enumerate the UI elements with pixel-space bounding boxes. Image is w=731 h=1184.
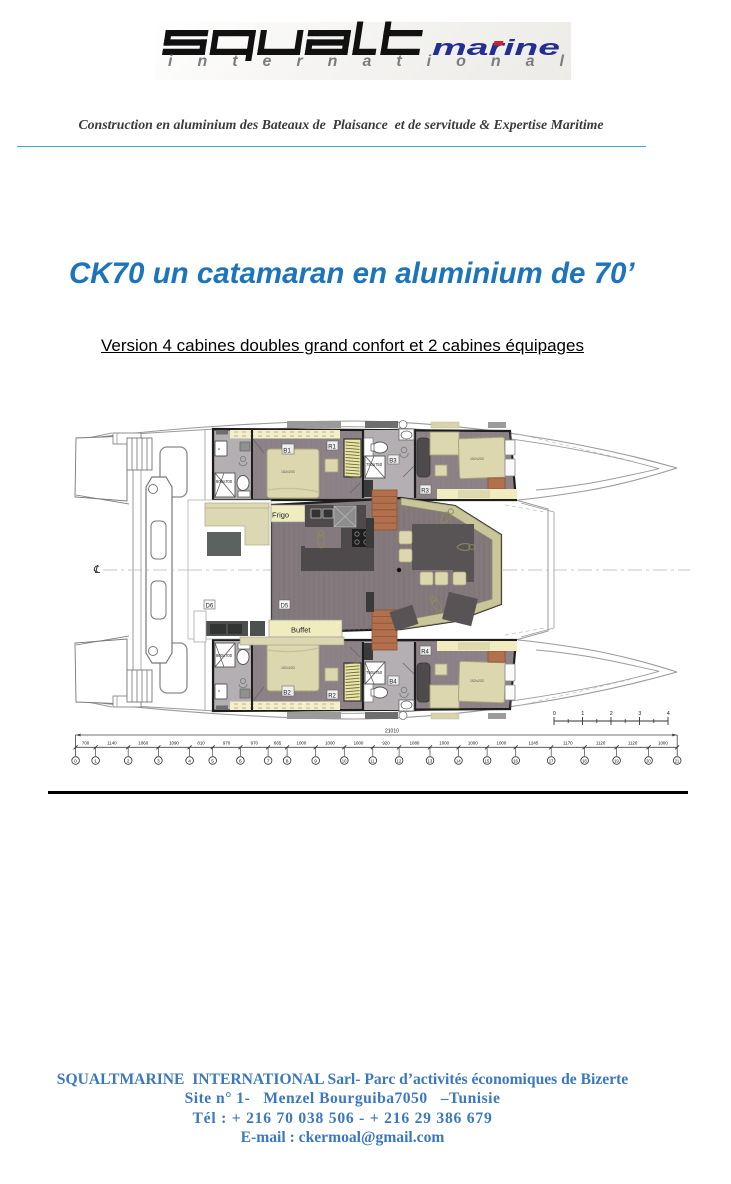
- svg-text:4: 4: [188, 758, 191, 764]
- svg-text:1: 1: [581, 711, 584, 717]
- svg-text:19: 19: [614, 758, 619, 763]
- svg-text:0: 0: [74, 758, 77, 764]
- svg-text:17: 17: [549, 758, 554, 763]
- svg-text:1120: 1120: [596, 741, 606, 746]
- svg-text:152x203: 152x203: [281, 666, 295, 670]
- svg-text:3: 3: [157, 758, 160, 764]
- svg-text:1140: 1140: [107, 741, 117, 746]
- svg-text:1000: 1000: [439, 741, 449, 746]
- svg-text:1000: 1000: [497, 741, 507, 746]
- svg-text:152x203: 152x203: [281, 470, 295, 474]
- svg-text:8: 8: [286, 758, 289, 764]
- svg-text:11: 11: [370, 758, 375, 763]
- svg-text:1000: 1000: [354, 741, 364, 746]
- svg-text:6: 6: [239, 758, 242, 764]
- svg-text:800x700: 800x700: [216, 653, 233, 658]
- svg-text:2: 2: [127, 758, 130, 764]
- svg-text:20: 20: [646, 758, 651, 763]
- svg-text:1120: 1120: [628, 741, 638, 746]
- svg-text:D6: D6: [206, 604, 214, 610]
- svg-text:1090: 1090: [169, 741, 179, 746]
- svg-text:4: 4: [667, 711, 670, 717]
- svg-text:B1: B1: [283, 448, 291, 455]
- svg-text:800x700: 800x700: [216, 479, 233, 484]
- svg-text:1000: 1000: [297, 741, 307, 746]
- svg-text:5: 5: [211, 758, 214, 764]
- svg-text:R1: R1: [328, 445, 336, 451]
- svg-text:R4: R4: [421, 650, 429, 656]
- svg-text:16: 16: [513, 758, 518, 763]
- svg-text:1: 1: [94, 758, 97, 764]
- svg-text:7: 7: [267, 758, 270, 764]
- svg-text:152x203: 152x203: [470, 679, 484, 683]
- svg-text:R3: R3: [421, 489, 429, 495]
- svg-text:18: 18: [582, 758, 587, 763]
- svg-text:810: 810: [197, 741, 205, 746]
- svg-text:℄: ℄: [93, 564, 101, 576]
- svg-text:D5: D5: [281, 604, 289, 610]
- svg-text:665: 665: [274, 741, 282, 746]
- svg-text:Buffet: Buffet: [291, 626, 311, 635]
- svg-text:2: 2: [610, 711, 613, 717]
- svg-text:152x203: 152x203: [470, 457, 484, 461]
- svg-text:21: 21: [675, 758, 680, 763]
- svg-text:15: 15: [485, 758, 490, 763]
- svg-text:1245: 1245: [529, 741, 539, 746]
- svg-text:1080: 1080: [410, 741, 420, 746]
- svg-text:750x750: 750x750: [366, 670, 383, 675]
- svg-text:0: 0: [553, 711, 556, 717]
- svg-text:10: 10: [342, 758, 347, 763]
- svg-text:700: 700: [82, 741, 90, 746]
- svg-text:750x750: 750x750: [366, 462, 383, 467]
- svg-text:14: 14: [456, 758, 461, 763]
- svg-text:1060: 1060: [138, 741, 148, 746]
- svg-text:B4: B4: [389, 680, 397, 686]
- svg-text:21010: 21010: [385, 729, 399, 735]
- svg-text:Frigo: Frigo: [272, 511, 289, 520]
- svg-text:3: 3: [638, 711, 641, 717]
- svg-text:9: 9: [314, 758, 317, 764]
- svg-text:1000: 1000: [658, 741, 668, 746]
- svg-text:1170: 1170: [563, 741, 573, 746]
- svg-text:920: 920: [382, 741, 390, 746]
- svg-text:12: 12: [397, 758, 402, 763]
- svg-text:B2: B2: [283, 690, 291, 697]
- svg-text:13: 13: [428, 758, 433, 763]
- svg-text:970: 970: [251, 741, 259, 746]
- svg-text:1000: 1000: [325, 741, 335, 746]
- svg-text:B3: B3: [389, 459, 397, 465]
- svg-text:970: 970: [223, 741, 231, 746]
- svg-text:1000: 1000: [468, 741, 478, 746]
- svg-text:R2: R2: [328, 694, 336, 700]
